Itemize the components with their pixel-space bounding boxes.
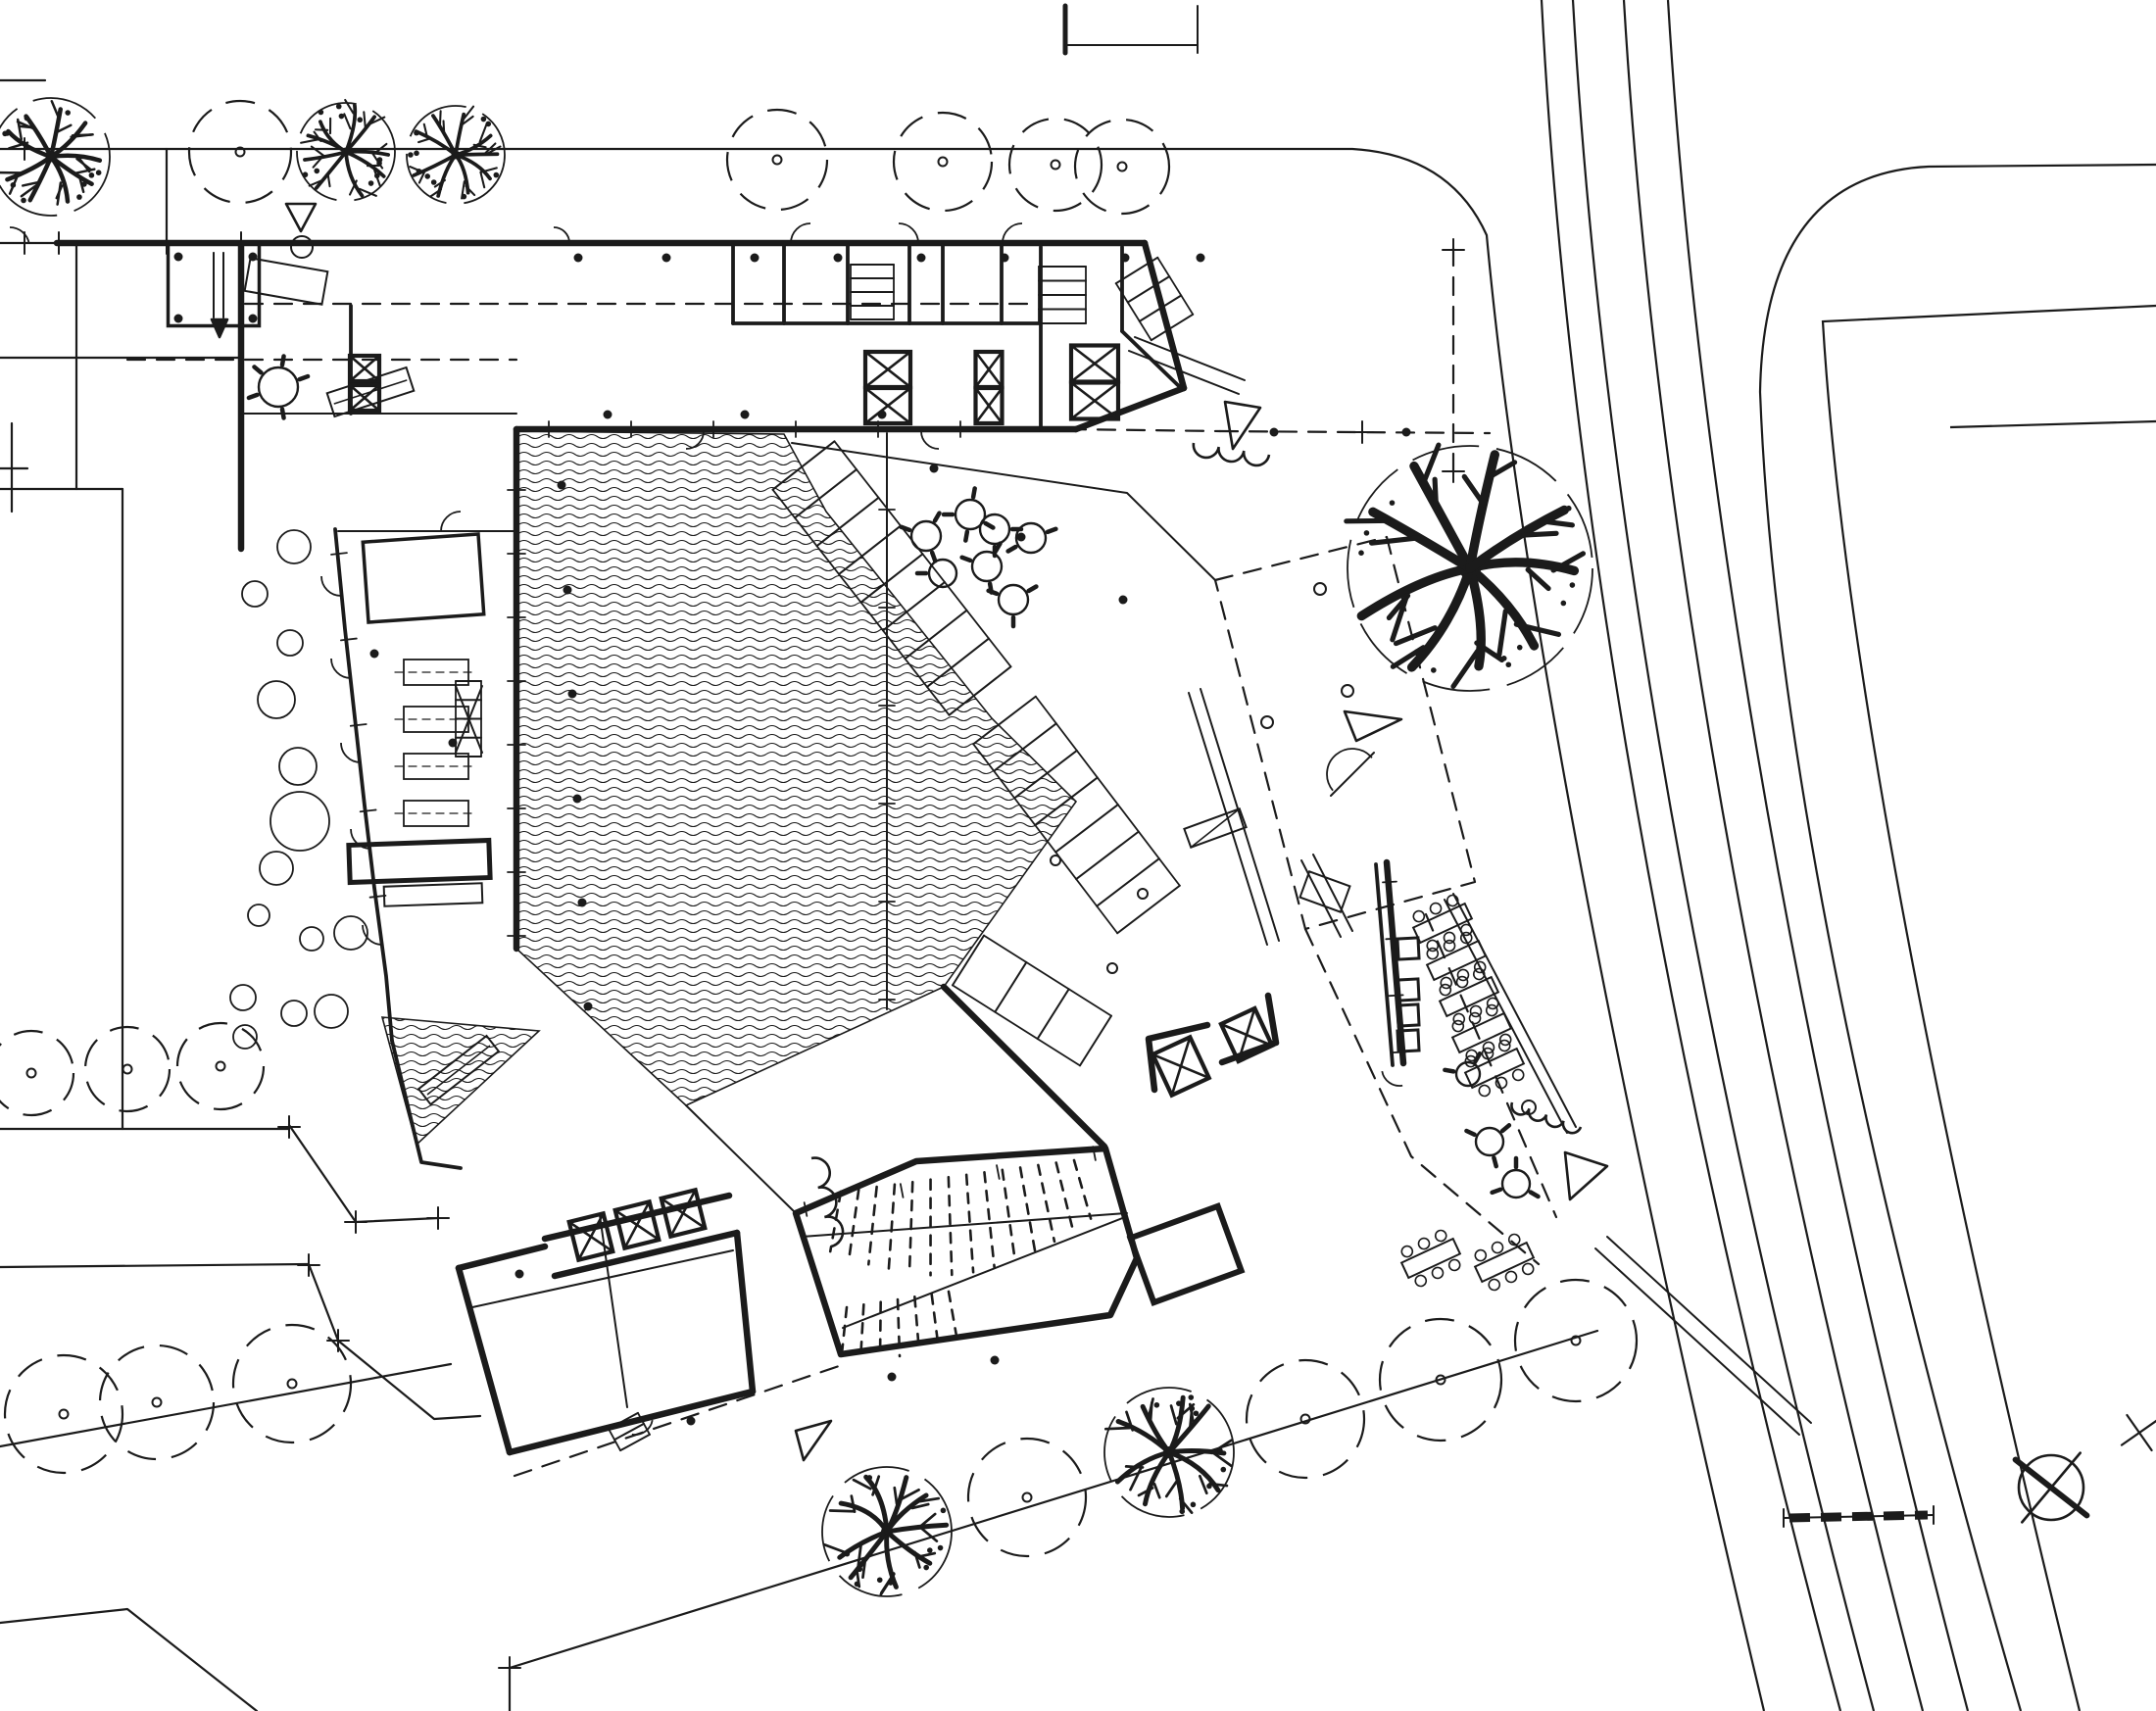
plan-rect	[1130, 1206, 1241, 1302]
tree-foliage-dot	[318, 110, 324, 116]
cafe-chair	[1008, 547, 1016, 552]
tree-foliage-dot	[414, 150, 419, 156]
wall-medium	[335, 529, 392, 1041]
tree-foliage-dot	[65, 110, 71, 116]
edge-tick	[997, 1165, 1000, 1179]
wall-thick	[944, 987, 1104, 1147]
small-open-circle	[1051, 855, 1060, 865]
column-dot	[249, 253, 258, 262]
shrub-circle	[334, 916, 367, 950]
tree-twig	[1435, 479, 1436, 507]
wall-thin	[843, 1217, 1125, 1328]
road-line	[1950, 421, 2156, 427]
column-dot	[449, 739, 458, 748]
tree-outline	[968, 1439, 1086, 1556]
stair-tread	[1076, 832, 1139, 879]
small-open-circle	[1314, 583, 1326, 595]
door-swing-arc	[1382, 1071, 1402, 1086]
column-dot	[174, 253, 183, 262]
tree-outline	[5, 1355, 122, 1473]
tree-foliage-dot	[1431, 667, 1437, 673]
road-line	[1760, 165, 2156, 1711]
tree-twig	[316, 129, 327, 130]
triangle-marker	[796, 1421, 831, 1460]
site-dashed-line	[1215, 537, 1475, 929]
tree-foliage-dot	[485, 122, 491, 127]
column-dot	[888, 1373, 897, 1382]
tree-twig	[418, 139, 429, 142]
tree-outline	[85, 1027, 170, 1111]
chair-circle	[1521, 1262, 1536, 1277]
tree-twig	[824, 1544, 847, 1553]
tree-outline	[233, 1325, 351, 1442]
column-dot	[687, 1417, 696, 1426]
tree-foliage-dot	[303, 171, 309, 177]
dining-table-top	[1440, 977, 1498, 1016]
cafe-chair	[249, 395, 257, 398]
tree-foliage-dot	[21, 198, 26, 204]
column-dot	[917, 254, 926, 263]
column-dot	[370, 650, 379, 659]
tree-foliage-dot	[89, 172, 95, 178]
tree-foliage-dot	[314, 169, 319, 174]
tree-foliage-dot	[81, 181, 87, 187]
shrub-circle	[277, 630, 303, 656]
column-dot	[563, 586, 572, 595]
elevator-core	[976, 388, 1003, 423]
tree-twig	[344, 114, 350, 128]
edge-tick	[341, 639, 357, 641]
tree-center-dot	[153, 1398, 162, 1407]
triangle-marker	[1225, 402, 1260, 449]
column-dot	[584, 1002, 593, 1011]
tree-twig	[895, 1488, 897, 1504]
stair-tread	[1128, 276, 1169, 302]
cafe-chair	[300, 376, 308, 379]
elevator-core	[615, 1201, 660, 1248]
tree-foliage-dot	[941, 1508, 947, 1514]
tree-foliage-dot	[416, 169, 422, 174]
tree-foliage-dot	[424, 173, 430, 179]
chair-circle	[1491, 1241, 1505, 1255]
column-dot	[1402, 428, 1411, 437]
tree-twig	[1464, 476, 1484, 505]
column-dot	[568, 690, 577, 699]
seat-row	[860, 1304, 863, 1354]
wall-thick	[1076, 388, 1184, 429]
chair-circle	[1417, 1237, 1432, 1251]
tree-foliage-dot	[368, 180, 374, 186]
cafe-table	[999, 585, 1028, 614]
elevator-core	[661, 1190, 706, 1237]
cafe-table	[911, 521, 941, 551]
tree-branch	[887, 1525, 947, 1532]
tree-foliage-dot	[336, 104, 342, 110]
wall-thin	[802, 1213, 1127, 1237]
chair-circle	[1486, 997, 1500, 1011]
cafe-chair	[962, 558, 970, 561]
column-dot	[558, 481, 566, 490]
wall-thick	[737, 1233, 753, 1392]
dining-table-top	[1452, 1013, 1511, 1052]
stair-tread	[1117, 886, 1180, 933]
column-dot	[741, 411, 750, 419]
tree-foliage-dot	[1176, 1400, 1182, 1406]
wall-thin	[1331, 753, 1374, 796]
wall-thick	[510, 1392, 753, 1452]
column-dot	[1119, 596, 1128, 605]
elevator-core	[1152, 1037, 1209, 1095]
tree-branch	[887, 1532, 930, 1563]
small-open-circle	[1138, 889, 1148, 899]
tree-twig	[852, 1496, 855, 1512]
tree-foliage-dot	[923, 1565, 929, 1571]
tree-twig	[1200, 1476, 1206, 1492]
tree-branch	[1169, 1406, 1208, 1452]
door-swing-arc	[321, 576, 341, 596]
dining-table	[1469, 1231, 1539, 1294]
tree-foliage-dot	[1517, 645, 1523, 651]
triangle-marker	[1565, 1152, 1607, 1199]
elevator-core	[1071, 346, 1118, 382]
tree-foliage-dot	[414, 130, 419, 136]
elevator-core	[976, 352, 1003, 387]
road-line	[1542, 0, 1840, 1711]
chair-circle	[1487, 1278, 1501, 1293]
tree-twig	[1154, 1484, 1159, 1497]
tree-foliage-dot	[1390, 500, 1396, 506]
tree-center-dot	[1118, 163, 1127, 171]
tree-twig	[345, 100, 353, 113]
site-line	[0, 1609, 257, 1711]
tree-center-dot	[123, 1065, 132, 1074]
tree-twig	[920, 1553, 935, 1556]
tree-branch	[1143, 1406, 1169, 1452]
shrub-circle	[315, 995, 348, 1028]
column-dot	[930, 464, 939, 473]
shrub-circle	[270, 792, 329, 851]
wall-thin	[1595, 1248, 1799, 1435]
column-dot	[1197, 254, 1205, 263]
small-open-circle	[1342, 685, 1353, 697]
chair-circle	[1413, 1274, 1428, 1289]
plan-rect	[1300, 871, 1350, 911]
wall-thin	[472, 1250, 733, 1307]
shrub-circle	[248, 904, 269, 926]
tree-foliage-dot	[1191, 1502, 1197, 1508]
cafe-chair	[932, 553, 935, 561]
edge-tick	[901, 1184, 904, 1198]
site-dashed-line	[1068, 429, 1220, 431]
shrub-circle	[258, 681, 295, 718]
site-plan-svg	[0, 0, 2156, 1711]
tree-foliage-dot	[1364, 530, 1370, 536]
tree-center-dot	[773, 156, 782, 165]
tree-twig	[52, 101, 59, 118]
seat-row	[880, 1302, 881, 1357]
tree-center-dot	[27, 1069, 36, 1078]
chair-circle	[1469, 1004, 1484, 1019]
cafe-chair	[986, 523, 994, 528]
cafe-chair	[935, 513, 940, 521]
stair-tread	[1080, 1016, 1111, 1066]
column-dot	[834, 254, 843, 263]
edge-tick	[351, 724, 367, 726]
chair-circle	[1456, 968, 1471, 983]
chair-circle	[1485, 1003, 1499, 1018]
column-dot	[604, 411, 612, 419]
shrub-circle	[300, 927, 323, 951]
seat-row	[1056, 1162, 1073, 1230]
tree-twig	[301, 139, 318, 142]
tree-twig	[1171, 1406, 1176, 1425]
tree-twig	[1105, 1428, 1129, 1429]
cafe-table	[1502, 1170, 1530, 1198]
wall-thin	[1200, 689, 1279, 941]
tree-foliage-dot	[1206, 1484, 1212, 1490]
seat-row	[1038, 1165, 1054, 1242]
tree-center-dot	[939, 158, 948, 167]
plan-rect	[363, 534, 483, 622]
tree-foliage-dot	[888, 1580, 894, 1586]
chair-circle	[1477, 1084, 1492, 1099]
stair-rail	[984, 936, 1111, 1016]
seat-row	[1020, 1167, 1035, 1251]
tree-twig	[444, 121, 445, 134]
seat-row	[1074, 1160, 1091, 1219]
site-line	[0, 1264, 480, 1419]
dining-table-top	[1401, 1239, 1460, 1278]
seat-row	[868, 1187, 876, 1264]
tree-foliage-dot	[1570, 582, 1576, 588]
seat-row	[909, 1182, 912, 1273]
chair-circle	[1399, 1245, 1414, 1259]
cafe-chair	[1502, 1125, 1509, 1131]
chair-circle	[1450, 1019, 1465, 1034]
column-dot	[1270, 428, 1279, 437]
chair-circle	[1511, 1068, 1526, 1083]
wall-thick	[459, 1268, 510, 1452]
dining-table	[1396, 1227, 1465, 1290]
stair-tread	[620, 1435, 650, 1450]
tree-twig	[1166, 1482, 1176, 1496]
column-dot	[751, 254, 759, 263]
stair-tread	[1097, 858, 1159, 905]
tree-foliage-dot	[1217, 1447, 1223, 1453]
chair-circle	[1429, 902, 1444, 916]
elevator-x	[1152, 1037, 1209, 1095]
tree-foliage-dot	[855, 1582, 860, 1588]
dining-table-top	[1475, 1243, 1534, 1282]
tree-foliage-dot	[96, 170, 102, 175]
column-dot	[574, 254, 583, 263]
tree-foliage-dot	[408, 152, 414, 158]
cafe-chair	[973, 488, 975, 497]
tree-foliage-dot	[1188, 1394, 1194, 1400]
stair-tread	[995, 962, 1026, 1012]
tree-twig	[830, 1511, 854, 1512]
site-line	[510, 1331, 1597, 1668]
tree-foliage-dot	[357, 117, 363, 122]
tree-foliage-dot	[1154, 1402, 1160, 1408]
chair-circle	[1473, 1248, 1488, 1263]
tree-foliage-dot	[877, 1577, 883, 1583]
elevator-core	[1071, 383, 1118, 419]
tree-foliage-dot	[927, 1547, 933, 1553]
tree-center-dot	[288, 1380, 297, 1389]
door-swing-arc	[1327, 749, 1372, 791]
chair-circle	[1431, 1266, 1445, 1281]
chair-circle	[1504, 1270, 1519, 1285]
small-open-circle	[291, 236, 313, 258]
tree-foliage-dot	[1566, 506, 1572, 512]
seat-row	[984, 1172, 994, 1267]
tree-outline	[189, 101, 291, 203]
chair-circle	[1455, 975, 1470, 990]
dining-table-top	[1427, 941, 1486, 980]
cafe-chair	[254, 367, 261, 372]
tree-center-dot	[1023, 1493, 1032, 1502]
cafe-chair	[1531, 1193, 1539, 1198]
cafe-chair	[1476, 1053, 1481, 1061]
cafe-chair	[1029, 587, 1037, 592]
tree-twig	[328, 173, 330, 186]
tree-twig	[1372, 538, 1418, 543]
column-dot	[1121, 254, 1130, 263]
chair-circle	[1451, 1012, 1466, 1027]
door-swing-arc	[10, 227, 29, 244]
chair-circle	[1411, 909, 1426, 924]
tree-foliage-dot	[1220, 1467, 1226, 1473]
tree-foliage-dot	[376, 161, 382, 167]
column-dot	[662, 254, 671, 263]
road-line	[1823, 306, 2156, 1711]
triangle-marker	[212, 319, 227, 337]
tree-foliage-dot	[1189, 1406, 1195, 1412]
small-open-circle	[1107, 963, 1117, 973]
column-dot	[1017, 533, 1026, 542]
tree-foliage-dot	[374, 172, 380, 178]
tree-outline	[1075, 120, 1169, 214]
tree-twig	[1545, 521, 1572, 525]
column-dot	[174, 315, 183, 323]
tree-outline	[100, 1345, 214, 1459]
cafe-chair	[989, 591, 997, 594]
shrub-circle	[242, 581, 268, 607]
cafe-table	[1476, 1128, 1503, 1155]
tree-foliage-dot	[1194, 1410, 1200, 1416]
cafe-chair	[282, 410, 284, 418]
tree-foliage-dot	[866, 1475, 872, 1481]
plan-rect-diag	[1184, 808, 1246, 847]
drawing-canvas	[0, 0, 2156, 1711]
cafe-table	[972, 552, 1002, 581]
tree-foliage-dot	[1179, 1508, 1185, 1514]
tree-outline	[894, 113, 992, 211]
column-dot	[1001, 254, 1009, 263]
tree-foliage-dot	[462, 194, 467, 200]
chair-circle	[1468, 1011, 1483, 1026]
road-line	[1668, 0, 1968, 1711]
tree-foliage-dot	[1505, 661, 1511, 667]
shrub-circle	[279, 748, 317, 785]
tree-foliage-dot	[11, 182, 17, 188]
column-dot	[249, 315, 258, 323]
tree-outline	[1515, 1280, 1637, 1401]
triangle-marker	[1345, 711, 1401, 741]
tree-foliage-dot	[76, 194, 82, 200]
symbols-layer	[1065, 6, 2156, 1527]
tree-twig	[480, 172, 484, 188]
site-dashed-line	[514, 1364, 845, 1476]
cafe-chair	[1493, 1190, 1500, 1193]
tree-branch	[841, 1503, 887, 1532]
tree-center-dot	[1052, 161, 1060, 170]
site-dashed-line	[1305, 929, 1539, 1264]
plan-rect	[1397, 938, 1419, 959]
site-dashed-line	[1426, 914, 1556, 1217]
tree-outline	[177, 1023, 264, 1109]
chair-circle	[1434, 1229, 1448, 1244]
seat-row	[1003, 1170, 1015, 1260]
tree-twig	[58, 182, 61, 204]
tree-center-dot	[217, 1062, 225, 1071]
tree-foliage-dot	[1358, 550, 1364, 556]
tree-twig	[440, 111, 441, 127]
cafe-chair	[1466, 1131, 1474, 1135]
tree-outline	[727, 110, 827, 210]
chair-circle	[1507, 1233, 1522, 1247]
tree-branch	[320, 122, 346, 152]
cafe-chair	[902, 527, 909, 530]
cafe-chair	[1494, 1157, 1495, 1166]
stair-tread	[1038, 989, 1069, 1039]
tree-foliage-dot	[857, 1566, 862, 1572]
seat-row	[949, 1292, 956, 1334]
elevator-core	[865, 352, 910, 387]
water-layer	[382, 431, 1076, 1145]
cross-marker	[2127, 1415, 2151, 1450]
shrub-circle	[281, 1001, 307, 1026]
shrub-circle	[277, 530, 311, 563]
tree-foliage-dot	[845, 1551, 851, 1557]
cafe-table	[259, 367, 298, 407]
edge-tick	[361, 809, 376, 811]
shrub-circle	[260, 852, 293, 885]
tree-outline	[1009, 119, 1102, 211]
chair-circle	[1439, 976, 1453, 991]
seat-row	[932, 1295, 939, 1344]
tree-foliage-dot	[1501, 656, 1507, 661]
site-line	[0, 1364, 451, 1446]
plan-rect	[384, 883, 483, 905]
tree-twig	[1347, 520, 1388, 521]
plan-rect	[245, 258, 328, 304]
cafe-chair	[965, 532, 967, 541]
tree-foliage-dot	[2, 131, 8, 137]
dining-table-top	[1465, 1049, 1524, 1088]
tree-outline	[1247, 1360, 1364, 1478]
tree-foliage-dot	[481, 117, 487, 122]
seat-row	[849, 1190, 858, 1258]
small-open-circle	[1261, 716, 1273, 728]
triangle-marker	[286, 204, 316, 231]
chair-circle	[1472, 967, 1487, 982]
tree-twig	[1126, 1466, 1143, 1467]
elevator-core	[865, 388, 910, 423]
chair-circle	[1438, 983, 1452, 998]
column-dot	[578, 899, 587, 907]
